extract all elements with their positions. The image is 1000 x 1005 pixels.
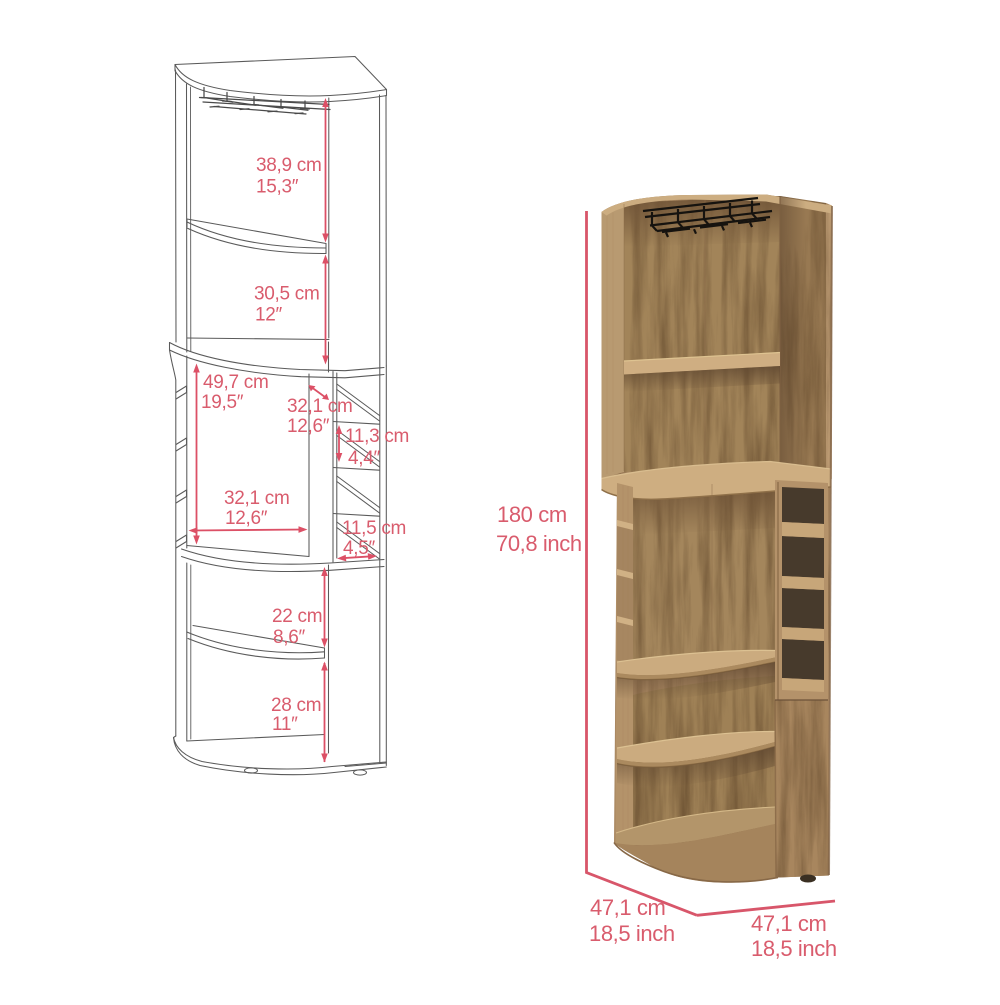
svg-text:30,5 cm: 30,5 cm bbox=[254, 284, 320, 305]
svg-text:11,3 cm: 11,3 cm bbox=[345, 426, 409, 447]
svg-text:22 cm: 22 cm bbox=[272, 606, 322, 627]
svg-text:70,8 inch: 70,8 inch bbox=[496, 531, 582, 556]
svg-text:18,5 inch: 18,5 inch bbox=[751, 936, 837, 961]
svg-text:12,6″: 12,6″ bbox=[225, 508, 268, 529]
svg-text:32,1 cm: 32,1 cm bbox=[287, 396, 353, 417]
svg-text:28 cm: 28 cm bbox=[271, 695, 321, 716]
svg-text:32,1 cm: 32,1 cm bbox=[224, 488, 290, 509]
svg-text:19,5″: 19,5″ bbox=[201, 392, 244, 413]
svg-text:47,1 cm: 47,1 cm bbox=[751, 911, 826, 936]
svg-text:47,1 cm: 47,1 cm bbox=[590, 895, 665, 920]
svg-text:12,6″: 12,6″ bbox=[287, 416, 330, 437]
svg-text:4,4″: 4,4″ bbox=[348, 448, 381, 469]
svg-text:8,6″: 8,6″ bbox=[273, 627, 306, 648]
svg-text:18,5 inch: 18,5 inch bbox=[589, 921, 675, 946]
svg-text:15,3″: 15,3″ bbox=[256, 177, 299, 198]
svg-text:11″: 11″ bbox=[272, 714, 298, 735]
svg-text:11,5 cm: 11,5 cm bbox=[342, 518, 406, 539]
svg-text:49,7 cm: 49,7 cm bbox=[203, 372, 269, 393]
svg-text:180 cm: 180 cm bbox=[497, 502, 567, 527]
svg-text:38,9 cm: 38,9 cm bbox=[256, 155, 322, 176]
svg-text:4,5″: 4,5″ bbox=[343, 538, 376, 559]
svg-text:12″: 12″ bbox=[255, 305, 283, 326]
